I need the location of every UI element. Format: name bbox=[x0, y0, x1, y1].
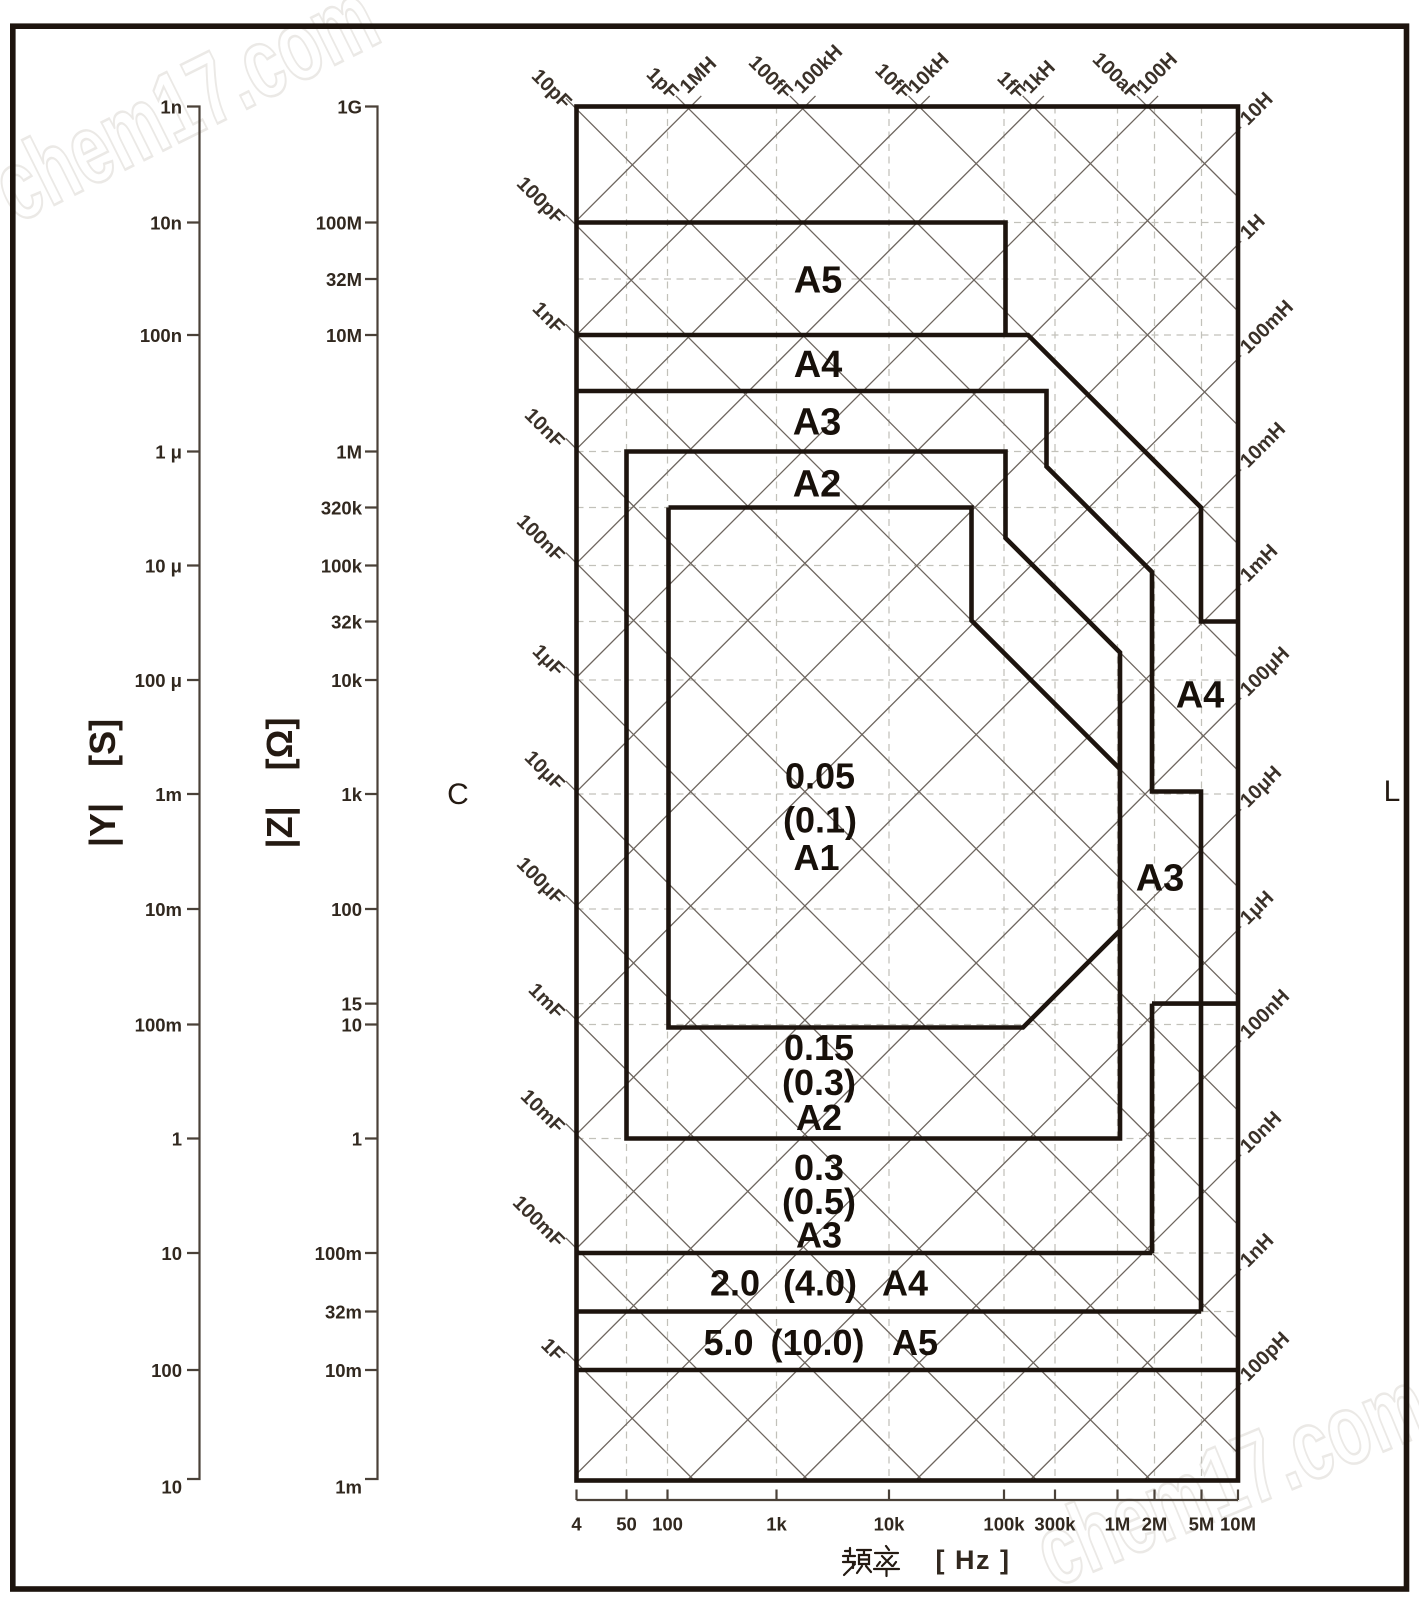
svg-text:A4: A4 bbox=[1176, 675, 1225, 717]
svg-text:2.0: 2.0 bbox=[710, 1263, 760, 1304]
svg-text:|Y| [S]: |Y| [S] bbox=[82, 719, 124, 847]
svg-text:A3: A3 bbox=[793, 402, 842, 444]
svg-text:2M: 2M bbox=[1142, 1514, 1168, 1535]
svg-text:(0.1): (0.1) bbox=[783, 800, 857, 841]
svg-text:A3: A3 bbox=[1136, 858, 1185, 900]
svg-text:A2: A2 bbox=[796, 1097, 842, 1138]
svg-text:0.05: 0.05 bbox=[785, 756, 855, 797]
svg-text:1M: 1M bbox=[336, 442, 362, 463]
svg-text:100k: 100k bbox=[983, 1514, 1025, 1535]
svg-text:10: 10 bbox=[341, 1015, 362, 1036]
svg-text:(10.0): (10.0) bbox=[770, 1322, 864, 1363]
svg-text:15: 15 bbox=[341, 994, 362, 1015]
svg-text:1n: 1n bbox=[160, 97, 182, 118]
svg-text:1m: 1m bbox=[335, 1477, 362, 1498]
svg-text:100n: 100n bbox=[140, 325, 182, 346]
svg-text:10M: 10M bbox=[326, 325, 362, 346]
svg-text:10k: 10k bbox=[331, 670, 363, 691]
svg-text:10 μ: 10 μ bbox=[145, 556, 182, 577]
svg-text:[ Hz ]: [ Hz ] bbox=[936, 1545, 1011, 1575]
svg-text:A1: A1 bbox=[793, 837, 839, 878]
svg-text:1G: 1G bbox=[337, 97, 362, 118]
svg-text:100: 100 bbox=[331, 899, 362, 920]
svg-text:|Z| [Ω]: |Z| [Ω] bbox=[259, 718, 301, 849]
svg-text:1k: 1k bbox=[766, 1514, 787, 1535]
svg-text:100M: 100M bbox=[316, 213, 362, 234]
svg-text:5M: 5M bbox=[1189, 1514, 1215, 1535]
svg-text:100m: 100m bbox=[135, 1015, 182, 1036]
svg-text:10n: 10n bbox=[150, 213, 182, 234]
svg-text:1m: 1m bbox=[155, 784, 182, 805]
svg-text:L: L bbox=[1384, 775, 1401, 808]
svg-text:A5: A5 bbox=[892, 1322, 938, 1363]
svg-text:300k: 300k bbox=[1034, 1514, 1076, 1535]
svg-text:4: 4 bbox=[571, 1514, 582, 1535]
svg-text:1: 1 bbox=[172, 1129, 182, 1150]
svg-text:10M: 10M bbox=[1220, 1514, 1256, 1535]
svg-text:10m: 10m bbox=[145, 899, 182, 920]
svg-text:C: C bbox=[447, 778, 469, 811]
svg-text:320k: 320k bbox=[321, 498, 363, 519]
svg-text:1 μ: 1 μ bbox=[155, 442, 182, 463]
svg-text:1k: 1k bbox=[341, 784, 362, 805]
svg-text:(4.0): (4.0) bbox=[783, 1263, 857, 1304]
svg-text:10k: 10k bbox=[874, 1514, 906, 1535]
svg-text:100: 100 bbox=[652, 1514, 683, 1535]
svg-text:10: 10 bbox=[161, 1477, 182, 1498]
svg-text:32M: 32M bbox=[326, 269, 362, 290]
svg-text:100: 100 bbox=[151, 1360, 182, 1381]
svg-text:100m: 100m bbox=[315, 1243, 362, 1264]
svg-text:1M: 1M bbox=[1105, 1514, 1131, 1535]
svg-text:100k: 100k bbox=[321, 556, 363, 577]
svg-text:50: 50 bbox=[616, 1514, 637, 1535]
svg-text:100 μ: 100 μ bbox=[135, 670, 182, 691]
svg-text:32m: 32m bbox=[325, 1302, 362, 1323]
svg-text:5.0: 5.0 bbox=[703, 1322, 753, 1363]
svg-text:1: 1 bbox=[352, 1129, 362, 1150]
svg-text:A5: A5 bbox=[794, 260, 843, 302]
svg-text:A3: A3 bbox=[796, 1215, 842, 1256]
svg-text:10: 10 bbox=[161, 1243, 182, 1264]
svg-text:A4: A4 bbox=[882, 1263, 928, 1304]
svg-text:A2: A2 bbox=[793, 464, 842, 506]
svg-text:10m: 10m bbox=[325, 1360, 362, 1381]
svg-text:32k: 32k bbox=[331, 612, 363, 633]
svg-text:A4: A4 bbox=[794, 344, 843, 386]
